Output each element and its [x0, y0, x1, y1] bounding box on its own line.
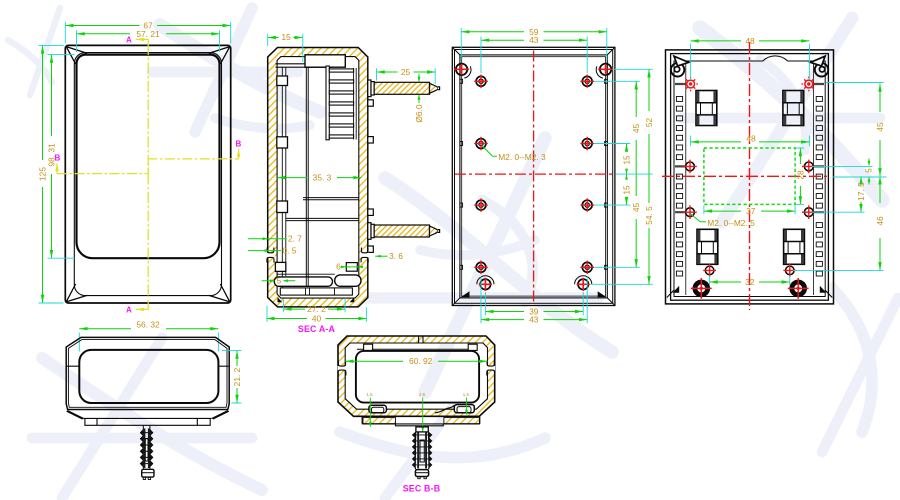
svg-text:45: 45 [631, 124, 641, 134]
svg-text:54. 5: 54. 5 [644, 206, 654, 225]
svg-text:56. 32: 56. 32 [136, 320, 160, 330]
svg-text:28: 28 [795, 170, 805, 180]
svg-text:48: 48 [746, 133, 756, 143]
svg-text:SEC B-B: SEC B-B [403, 484, 441, 494]
svg-text:37: 37 [746, 206, 756, 216]
svg-text:46: 46 [875, 216, 885, 226]
svg-text:27. 2: 27. 2 [307, 304, 326, 314]
svg-text:M2. 0--M2. 3: M2. 0--M2. 3 [498, 152, 546, 162]
svg-text:21. 2: 21. 2 [232, 367, 242, 386]
svg-text:125: 125 [37, 167, 47, 181]
svg-text:45: 45 [875, 122, 885, 132]
svg-text:Ø6.0: Ø6.0 [414, 104, 424, 122]
svg-text:48: 48 [745, 36, 755, 46]
svg-text:3. 6: 3. 6 [389, 251, 403, 261]
svg-text:43: 43 [529, 315, 539, 325]
svg-text:15: 15 [621, 185, 631, 195]
svg-text:25: 25 [401, 67, 411, 77]
svg-text:1.5: 1.5 [463, 392, 470, 397]
svg-text:52: 52 [644, 118, 654, 128]
svg-text:1.5: 1.5 [367, 392, 374, 397]
svg-text:35. 3: 35. 3 [313, 172, 332, 182]
svg-text:5: 5 [864, 168, 874, 173]
svg-text:98. 31: 98. 31 [46, 143, 56, 167]
svg-text:60. 92: 60. 92 [409, 356, 433, 366]
svg-text:40: 40 [312, 313, 322, 323]
svg-text:32: 32 [745, 277, 755, 287]
svg-text:43: 43 [529, 35, 539, 45]
svg-text:15: 15 [281, 32, 291, 42]
svg-text:SEC A-A: SEC A-A [298, 324, 336, 334]
svg-text:2. 7: 2. 7 [288, 234, 302, 244]
svg-text:A: A [126, 306, 132, 315]
svg-text:0. 5: 0. 5 [283, 245, 297, 255]
svg-text:45: 45 [631, 203, 641, 213]
svg-text:B: B [236, 140, 242, 149]
svg-text:2.5: 2.5 [419, 392, 426, 397]
svg-text:57. 21: 57. 21 [136, 29, 160, 39]
svg-text:A: A [126, 36, 132, 45]
svg-text:M2. 0--M2. 5: M2. 0--M2. 5 [707, 218, 755, 228]
svg-text:6: 6 [336, 262, 341, 272]
svg-text:15: 15 [621, 155, 631, 165]
svg-text:17. 5: 17. 5 [856, 182, 866, 201]
svg-text:5: 5 [276, 276, 281, 286]
